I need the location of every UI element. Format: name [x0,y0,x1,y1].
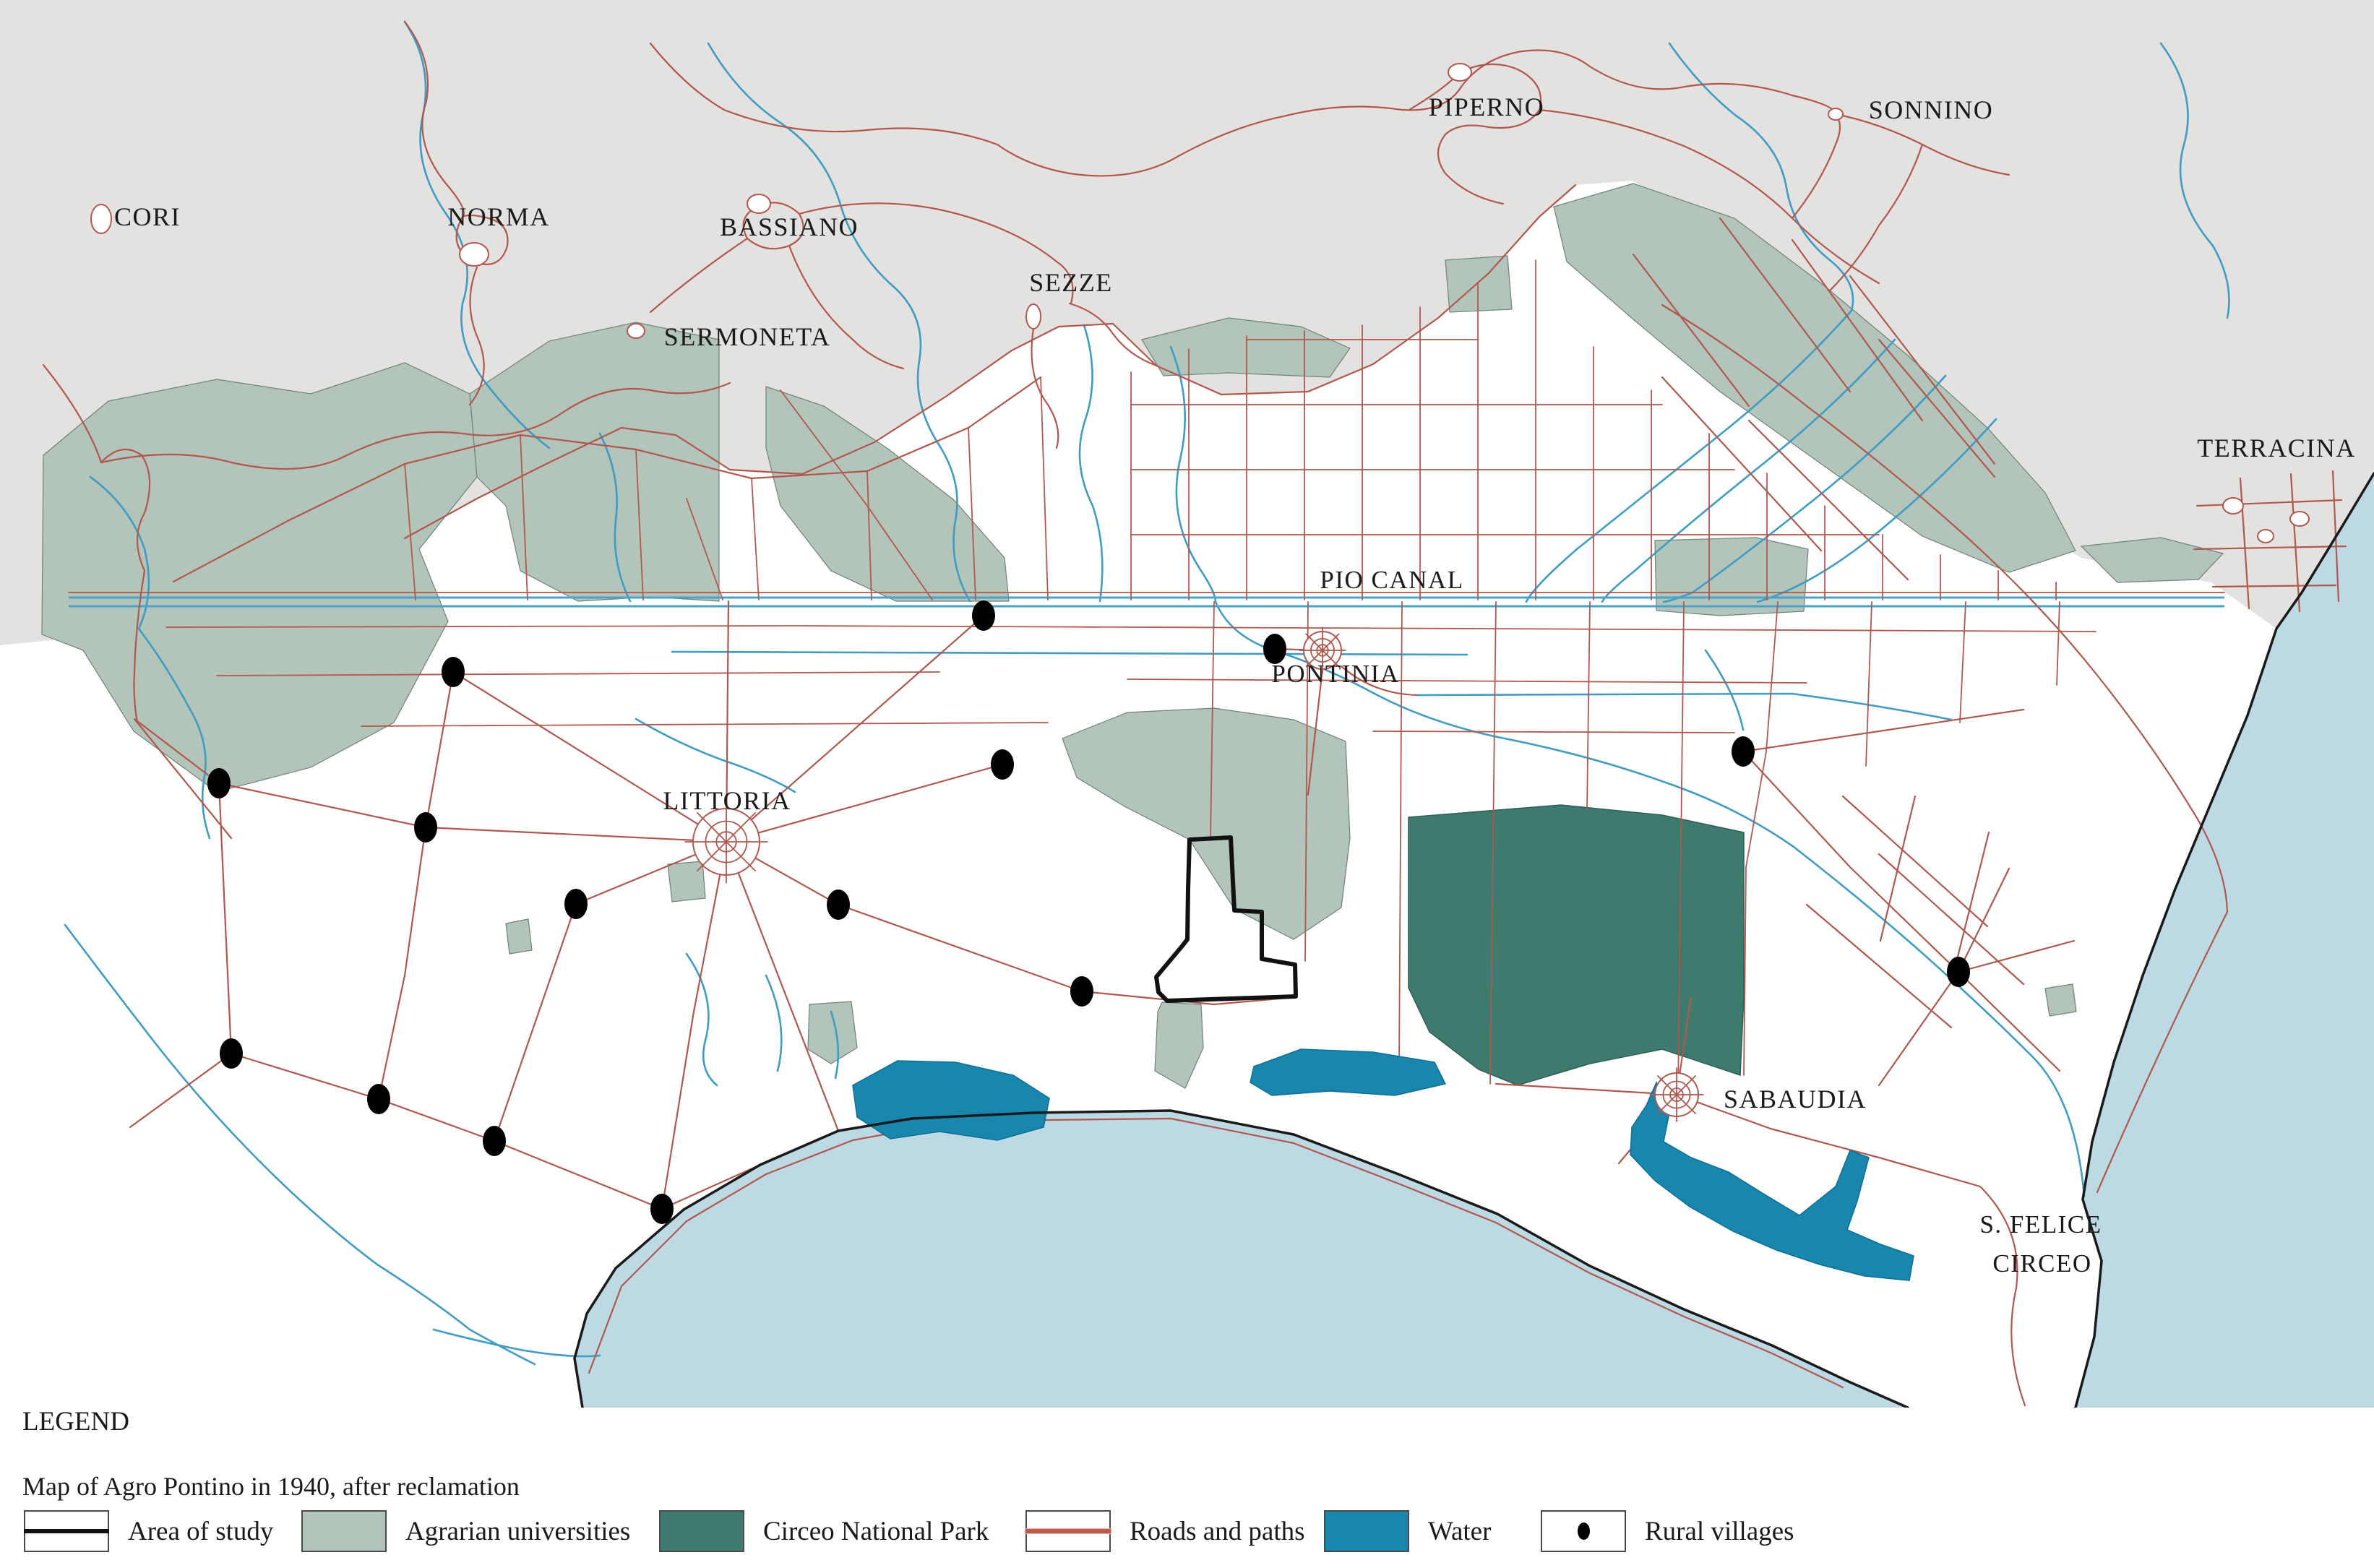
place-label-cori: CORI [114,202,181,231]
roads-and-paths-swatch [1025,1510,1111,1552]
circeo-national-park-area [1409,805,1744,1085]
rural-village-dot-11 [367,1084,390,1114]
sermoneta-town [627,324,645,338]
terracina-town-3 [2290,512,2309,526]
rural-village-dot-0 [972,600,995,631]
norma-town [460,243,489,266]
water-swatch [1324,1510,1409,1552]
terracina-town-1 [2223,498,2243,514]
sonnino-town [1828,108,1843,120]
rural-village-dot-9 [1070,976,1093,1007]
rural-village-dot-3 [1732,736,1755,767]
agrarian-universities-swatch [301,1510,387,1552]
rural-village-dot-12 [483,1126,506,1156]
agro-pontino-map: CORINORMABASSIANOSERMONETASEZZEPIPERNOSO… [0,0,2374,1568]
rural-village-dot-10 [220,1038,243,1069]
place-label-s-felice: S. FELICE [1979,1210,2102,1239]
legend-title: LEGEND [22,1406,129,1437]
legend-item-label: Agrarian universities [405,1516,630,1547]
place-label-norma: NORMA [447,202,550,231]
rural-village-dot-7 [564,889,588,919]
map-figure: CORINORMABASSIANOSERMONETASEZZEPIPERNOSO… [0,0,2374,1568]
rural-villages-swatch [1541,1510,1626,1552]
map-caption: Map of Agro Pontino in 1940, after recla… [22,1471,520,1502]
place-label-terracina: TERRACINA [2197,434,2356,462]
place-label-sabaudia: SABAUDIA [1724,1085,1867,1113]
rural-village-dot-1 [442,657,465,687]
legend-item-roads-and-paths: Roads and paths [1025,1510,1305,1552]
place-label-pontinia: PONTINIA [1271,660,1399,688]
rural-village-dot-5 [991,749,1014,780]
rural-village-dot-8 [827,889,850,920]
area-of-study-swatch [24,1510,109,1552]
legend-item-water: Water [1324,1510,1491,1552]
rural-village-dot-6 [414,812,437,843]
sezze-town [1026,304,1041,329]
legend-item-label: Water [1428,1516,1491,1547]
place-label-sezze: SEZZE [1029,268,1112,297]
rural-village-dot-14 [1947,957,1970,987]
bassiano-town [747,194,770,213]
legend-item-label: Rural villages [1645,1516,1794,1547]
place-label-pio-canal: PIO CANAL [1320,566,1463,594]
legend-item-circeo-national-park: Circeo National Park [659,1510,989,1552]
legend-item-label: Area of study [128,1516,273,1547]
rural-village-dot-4 [207,768,231,798]
legend-item-agrarian-universities: Agrarian universities [301,1510,630,1552]
sabaudia-town [1650,1068,1704,1122]
place-label-sonnino: SONNINO [1869,95,1994,124]
place-label-bassiano: BASSIANO [720,212,859,241]
legend-item-label: Circeo National Park [763,1516,989,1547]
place-label-circeo: CIRCEO [1992,1249,2091,1278]
legend-item-area-of-study: Area of study [24,1510,273,1552]
circeo-national-park-swatch [659,1510,744,1552]
place-label-littoria: LITTORIA [663,786,791,815]
legend-item-label: Roads and paths [1130,1516,1305,1547]
place-label-sermoneta: SERMONETA [664,322,831,351]
legend-item-rural-villages: Rural villages [1541,1510,1794,1552]
terracina-town-2 [2258,530,2274,543]
place-label-piperno: PIPERNO [1429,92,1545,121]
piperno-town [1448,64,1471,81]
rural-village-dot-13 [650,1194,674,1224]
cori-town [91,204,111,233]
legend: LEGEND Map of Agro Pontino in 1940, afte… [0,1408,2374,1568]
